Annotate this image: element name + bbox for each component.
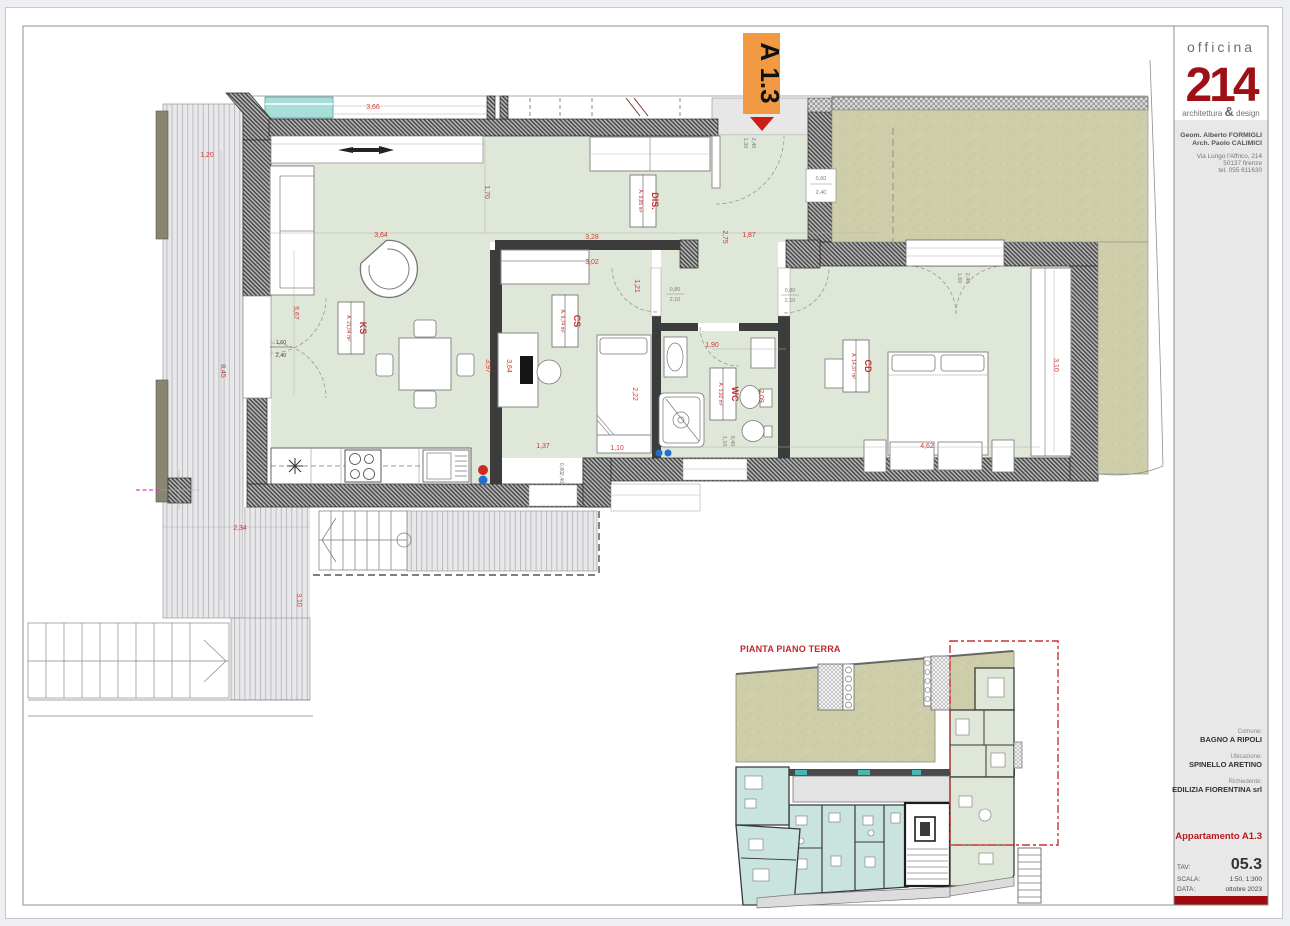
svg-text:A. 9,85 m²: A. 9,85 m²	[637, 189, 643, 212]
svg-text:1,20: 1,20	[200, 152, 214, 159]
svg-text:5,67: 5,67	[292, 306, 299, 320]
svg-text:A. 14,37 m²: A. 14,37 m²	[850, 353, 856, 379]
svg-text:1:50, 1:300: 1:50, 1:300	[1229, 876, 1262, 883]
svg-text:A. 3,92 m²: A. 3,92 m²	[717, 382, 723, 405]
svg-text:tel. 055 611630: tel. 055 611630	[1218, 167, 1262, 174]
svg-text:3,97: 3,97	[484, 359, 491, 373]
svg-text:PIANTA PIANO TERRA: PIANTA PIANO TERRA	[740, 644, 841, 654]
svg-text:SPINELLO ARETINO: SPINELLO ARETINO	[1189, 760, 1262, 769]
svg-text:0,80: 0,80	[670, 287, 681, 293]
svg-text:2,40: 2,40	[964, 273, 970, 284]
svg-text:2,34: 2,34	[233, 525, 247, 532]
svg-text:A. 21,04 m²: A. 21,04 m²	[345, 315, 351, 341]
svg-text:Geom. Alberto FORMIGLI: Geom. Alberto FORMIGLI	[1180, 132, 1262, 139]
svg-text:SCALA:: SCALA:	[1177, 876, 1200, 883]
svg-text:0,60: 0,60	[816, 176, 827, 182]
svg-text:1,21: 1,21	[633, 279, 640, 293]
svg-text:2,40: 2,40	[816, 190, 827, 196]
svg-text:1,60: 1,60	[956, 273, 962, 284]
svg-text:Via Lungo l'Affrico, 214: Via Lungo l'Affrico, 214	[1197, 153, 1263, 160]
svg-text:3,10: 3,10	[295, 593, 302, 607]
svg-text:BAGNO A RIPOLI: BAGNO A RIPOLI	[1200, 735, 1262, 744]
svg-text:1,60: 1,60	[276, 340, 287, 346]
svg-text:3,02: 3,02	[585, 259, 599, 266]
svg-text:EDILIZIA FIORENTINA srl: EDILIZIA FIORENTINA srl	[1172, 785, 1262, 794]
svg-text:3,64: 3,64	[374, 232, 388, 239]
svg-text:1,10: 1,10	[721, 436, 727, 447]
svg-text:1,90: 1,90	[705, 342, 719, 349]
svg-text:3,66: 3,66	[366, 104, 380, 111]
svg-text:ottobre 2023: ottobre 2023	[1225, 886, 1262, 893]
svg-text:TAV:: TAV:	[1177, 864, 1190, 871]
svg-text:8,45: 8,45	[219, 364, 226, 378]
svg-text:2,10: 2,10	[670, 297, 681, 303]
svg-text:DATA:: DATA:	[1177, 886, 1195, 893]
svg-text:WC: WC	[730, 387, 740, 402]
svg-text:2,40: 2,40	[558, 473, 564, 484]
svg-text:2,40: 2,40	[750, 138, 756, 149]
svg-text:2,22: 2,22	[631, 387, 638, 401]
svg-text:officina: officina	[1187, 39, 1255, 55]
svg-text:1,10: 1,10	[610, 445, 624, 452]
svg-text:CS: CS	[572, 315, 582, 328]
svg-text:A. 9,74 m²: A. 9,74 m²	[559, 309, 565, 332]
svg-text:CD: CD	[863, 360, 873, 373]
svg-text:2,75: 2,75	[721, 230, 728, 244]
svg-text:3,28: 3,28	[585, 234, 599, 241]
svg-text:KS: KS	[358, 322, 368, 335]
svg-text:1,30: 1,30	[742, 138, 748, 149]
svg-text:1,70: 1,70	[483, 185, 490, 199]
svg-text:05.3: 05.3	[1231, 856, 1262, 873]
svg-text:Appartamento A1.3: Appartamento A1.3	[1175, 831, 1262, 842]
svg-text:4,62: 4,62	[920, 443, 934, 450]
svg-text:3,64: 3,64	[505, 359, 512, 373]
svg-text:DIS.: DIS.	[650, 192, 660, 210]
svg-text:Arch. Paolo CALIMICI: Arch. Paolo CALIMICI	[1192, 140, 1262, 147]
svg-text:A 1.3: A 1.3	[755, 42, 785, 103]
svg-text:2,09: 2,09	[757, 389, 764, 403]
svg-text:214: 214	[1185, 59, 1259, 112]
svg-text:1,37: 1,37	[536, 443, 550, 450]
svg-text:0,40: 0,40	[729, 436, 735, 447]
svg-text:0,80: 0,80	[785, 288, 796, 294]
svg-text:2,10: 2,10	[785, 298, 796, 304]
svg-text:3,10: 3,10	[1052, 358, 1059, 372]
svg-text:1,87: 1,87	[742, 232, 756, 239]
svg-text:50137 firenze: 50137 firenze	[1223, 160, 1262, 167]
svg-text:2,40: 2,40	[276, 353, 287, 359]
